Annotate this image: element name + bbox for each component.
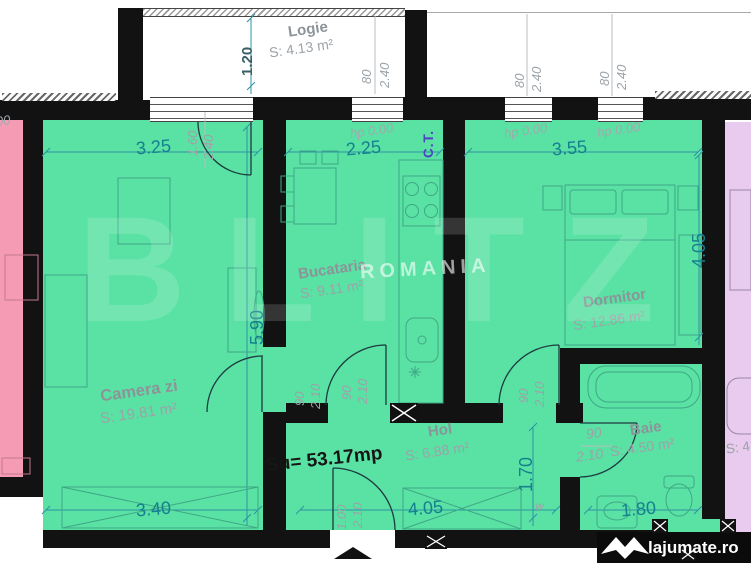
window-sill-hatch: [2, 93, 116, 101]
balcony-railing: [143, 8, 405, 17]
room-label-hol: Hol: [427, 421, 453, 441]
dim-bucatarie-window-h: 2.40: [378, 63, 392, 88]
dim-dormitor-window2-h: 2.40: [615, 65, 629, 90]
room-area-logie: S: 4.13 m²: [268, 37, 334, 61]
room-fill-neighbor-left: [0, 113, 23, 477]
dim-dormitor-window1-h: 2.40: [530, 67, 544, 92]
wall: [403, 97, 505, 120]
dim-bucatarie-door-w: 90: [340, 386, 354, 400]
window: [505, 97, 552, 122]
wall: [43, 530, 330, 548]
wall: [560, 348, 580, 423]
room-fill-camera-doorway: [263, 347, 286, 412]
dim-logie-depth: 1.20: [240, 47, 257, 76]
lajumate-logo-text: lajumate.ro: [648, 538, 739, 558]
dim-bucatarie-door-h: 2.10: [356, 379, 370, 404]
hp-label-partial-left: 00: [0, 113, 11, 129]
window-sill-hatch: [655, 91, 751, 99]
floor-plan: Logie S: 4.13 m² 1.20 80 2.40 80 2.40 80…: [0, 0, 751, 563]
wall: [560, 477, 580, 532]
window: [150, 97, 253, 122]
room-fill-bucatarie-doorway: [328, 403, 390, 423]
room-fill-dormitor-doorway: [503, 403, 556, 423]
dim-dormitor-window2-w: 80: [598, 72, 612, 86]
dim-camera-bottom: 3.40: [135, 499, 172, 522]
room-fill-neighbor-right: [725, 122, 751, 519]
dim-hol-side: 1.70: [517, 457, 537, 492]
dim-entrance-door-h: 2.10: [351, 503, 365, 528]
dim-dormitor-window1-w: 80: [513, 74, 527, 88]
dim-baie-door-w: 90: [585, 425, 603, 442]
wall: [253, 97, 352, 120]
dim-dormitor-door-h: 2.10: [533, 382, 547, 407]
dim-camera-door-w: 90: [293, 392, 307, 406]
entrance-marker-triangle: [334, 547, 372, 559]
dim-balcony-door-w: 1.60: [186, 131, 200, 156]
dim-balcony-door-h: 2.40: [202, 135, 216, 160]
dim-dormitor-top: 3.55: [551, 138, 588, 161]
building-outline-line: [427, 12, 751, 13]
wall: [643, 97, 751, 120]
wall: [552, 97, 598, 120]
dim-hol-bottom: 4.05: [407, 498, 444, 521]
wall: [418, 403, 503, 423]
washer-label: w: [535, 500, 544, 513]
dim-camera-top: 3.25: [135, 137, 172, 160]
window: [598, 97, 643, 122]
dim-baie-bottom: 1.80: [620, 499, 657, 522]
dim-camera-door-h: 2.10: [309, 384, 323, 409]
window: [352, 97, 403, 122]
dim-bucatarie-top: 2.25: [345, 138, 382, 161]
wall: [0, 477, 43, 497]
dim-bucatarie-window-w: 80: [360, 70, 374, 84]
boiler-label: C.T.: [422, 130, 437, 158]
dim-entrance-door-w: 1.00: [335, 505, 349, 530]
wall: [405, 10, 427, 97]
dim-dormitor-door-w: 90: [517, 389, 531, 403]
wall: [23, 113, 43, 497]
